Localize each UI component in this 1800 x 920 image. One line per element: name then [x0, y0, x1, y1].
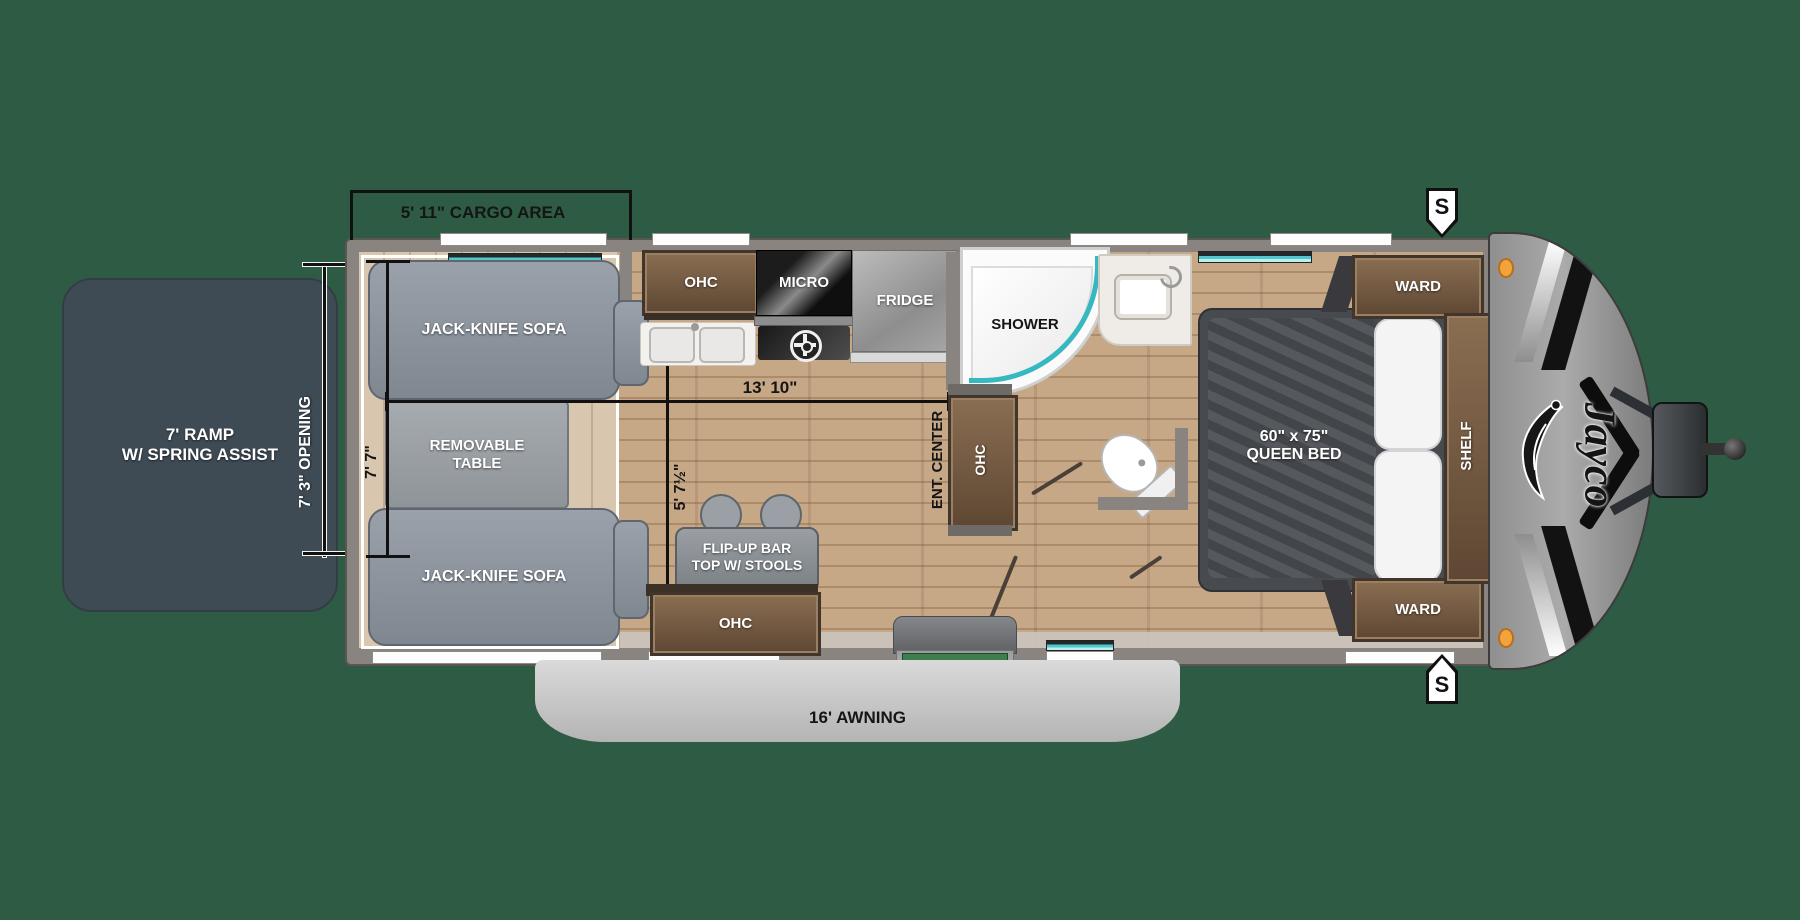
garage-dimension-tick-bottom [366, 555, 410, 558]
speaker-bottom-letter: S [1435, 672, 1450, 698]
cooktop [758, 326, 850, 360]
opening-dimension-tick-bottom [303, 552, 347, 555]
window-top-bedroom-right [1270, 233, 1392, 246]
propane-tank [1652, 402, 1708, 498]
sofa-bottom-label: JACK-KNIFE SOFA [422, 568, 567, 586]
main-dimension-label: 13' 10" [700, 378, 840, 398]
jack-knife-sofa-bottom: JACK-KNIFE SOFA [368, 508, 620, 646]
sink-faucet [691, 323, 699, 331]
microwave-label: MICRO [779, 274, 829, 291]
microwave: MICRO [756, 250, 852, 316]
opening-dimension-tick-top [303, 263, 347, 266]
jack-knife-sofa-top: JACK-KNIFE SOFA [368, 260, 620, 400]
kitchen-bath-wall [946, 252, 960, 390]
window-bedroom-interior [1198, 251, 1312, 263]
removable-table: REMOVABLE TABLE [385, 400, 569, 509]
bath-vanity [1098, 254, 1192, 346]
window-bottom-mid-teal [1046, 640, 1114, 651]
floorplan-canvas: 7' RAMP W/ SPRING ASSIST 7' 3" OPENING 5… [0, 0, 1800, 920]
bed-pillow-bottom [1374, 450, 1442, 582]
bath-ohc-label: OHC [970, 380, 990, 540]
cargo-bracket-leg-right [629, 190, 632, 240]
marker-light-bottom [1498, 628, 1514, 648]
bottom-ohc-cabinet: OHC [650, 592, 821, 656]
fridge: FRIDGE [852, 250, 958, 352]
shower-label: SHOWER [975, 316, 1075, 333]
bed-label-line2: QUEEN BED [1212, 446, 1376, 464]
kitchen-sink-counter [640, 322, 756, 366]
marker-light-top [1498, 258, 1514, 278]
table-label-line1: REMOVABLE [430, 437, 525, 454]
garage-dimension-tick-top [366, 260, 410, 263]
burner-icon [790, 330, 822, 362]
sink-basin-left [649, 327, 695, 363]
queen-bed-label: 60" x 75" QUEEN BED [1212, 428, 1376, 465]
window-top-bedroom-left [1070, 233, 1188, 246]
awning-label: 16' AWNING [809, 708, 906, 728]
flip-up-bar: FLIP-UP BAR TOP W/ STOOLS [675, 527, 819, 586]
bottom-ohc-label: OHC [719, 615, 752, 632]
bath-wall-vertical [1175, 428, 1188, 510]
entry-step-well [893, 616, 1017, 654]
opening-dimension-line [323, 265, 326, 557]
wardrobe-bottom: WARD [1352, 578, 1484, 642]
ward-bottom-label: WARD [1395, 601, 1441, 618]
speaker-marker-top: S [1426, 188, 1458, 238]
jayco-logo-text: Jayco [1575, 402, 1626, 507]
bar-label-line2: TOP W/ STOOLS [692, 557, 802, 573]
opening-dimension-label: 7' 3" OPENING [296, 372, 316, 532]
range-hood [754, 316, 854, 326]
sink-basin-right [699, 327, 745, 363]
main-dimension-tick-left [385, 392, 388, 411]
speaker-top-letter: S [1435, 194, 1450, 220]
cargo-bracket-top [350, 190, 632, 193]
wardrobe-top: WARD [1352, 255, 1484, 319]
jayco-eagle-icon [1512, 396, 1564, 502]
ramp-label-line1: 7' RAMP [122, 425, 278, 445]
window-top-garage [440, 233, 607, 246]
bed-label-line1: 60" x 75" [1212, 428, 1376, 446]
bed-pillow-top [1374, 318, 1442, 450]
ramp-label-line2: W/ SPRING ASSIST [122, 445, 278, 465]
sofa-bottom-arm [613, 520, 649, 619]
cargo-area-label: 5' 11" CARGO AREA [353, 203, 613, 223]
window-top-kitchen [652, 233, 750, 246]
fridge-base [850, 352, 960, 363]
kitchen-ohc-shadow [644, 313, 754, 320]
ward-top-label: WARD [1395, 278, 1441, 295]
table-label-line2: TABLE [430, 455, 525, 472]
ent-center-label: ENT. CENTER [928, 380, 948, 540]
garage-dimension-label: 7' 7" [362, 382, 382, 542]
bar-label-line1: FLIP-UP BAR [692, 540, 802, 556]
kitchen-ohc-cabinet: OHC [642, 250, 760, 316]
kitchen-ohc-label: OHC [684, 274, 717, 291]
fridge-label: FRIDGE [877, 292, 934, 309]
sofa-top-label: JACK-KNIFE SOFA [422, 321, 567, 339]
awning: 16' AWNING [535, 660, 1180, 742]
shelf-label: SHELF [1457, 366, 1477, 526]
hitch-ball-icon [1724, 438, 1746, 460]
